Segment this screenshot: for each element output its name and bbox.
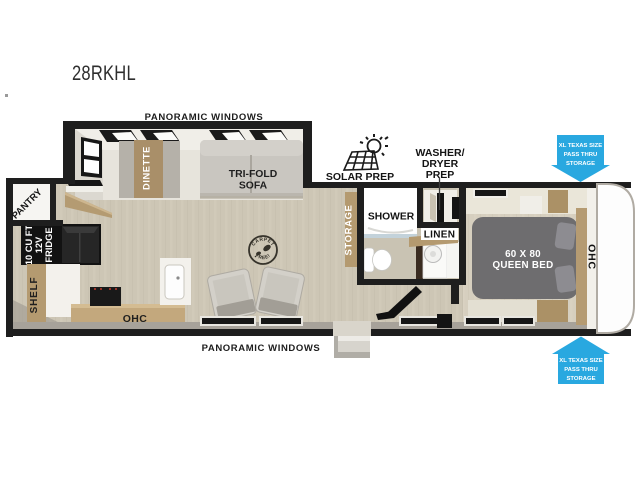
svg-text:60 X 80: 60 X 80	[505, 249, 541, 260]
svg-text:STORAGE: STORAGE	[566, 376, 595, 382]
svg-text:28RKHL: 28RKHL	[72, 62, 136, 86]
svg-text:PASS THRU: PASS THRU	[564, 152, 598, 158]
svg-text:SHELF: SHELF	[29, 277, 40, 314]
svg-text:PASS THRU: PASS THRU	[564, 367, 598, 373]
svg-text:TRI-FOLD: TRI-FOLD	[229, 169, 278, 180]
svg-text:PREP: PREP	[426, 169, 455, 181]
svg-text:SOFA: SOFA	[239, 181, 268, 192]
svg-text:XL TEXAS SIZE: XL TEXAS SIZE	[559, 358, 602, 364]
svg-text:LINEN: LINEN	[424, 230, 456, 241]
svg-text:FRIDGE: FRIDGE	[44, 227, 54, 262]
svg-text:SOLAR PREP: SOLAR PREP	[326, 171, 394, 183]
svg-text:QUEEN BED: QUEEN BED	[493, 260, 554, 271]
svg-text:10 CU FT: 10 CU FT	[24, 225, 34, 266]
svg-text:12V: 12V	[34, 236, 44, 253]
svg-text:DINETTE: DINETTE	[142, 146, 152, 190]
svg-text:SHOWER: SHOWER	[368, 212, 415, 223]
svg-text:STORAGE: STORAGE	[566, 161, 595, 167]
svg-text:STORAGE: STORAGE	[344, 204, 355, 255]
svg-text:PANORAMIC WINDOWS: PANORAMIC WINDOWS	[202, 343, 321, 354]
svg-text:OHC: OHC	[586, 244, 598, 270]
svg-text:XL TEXAS SIZE: XL TEXAS SIZE	[559, 143, 602, 149]
